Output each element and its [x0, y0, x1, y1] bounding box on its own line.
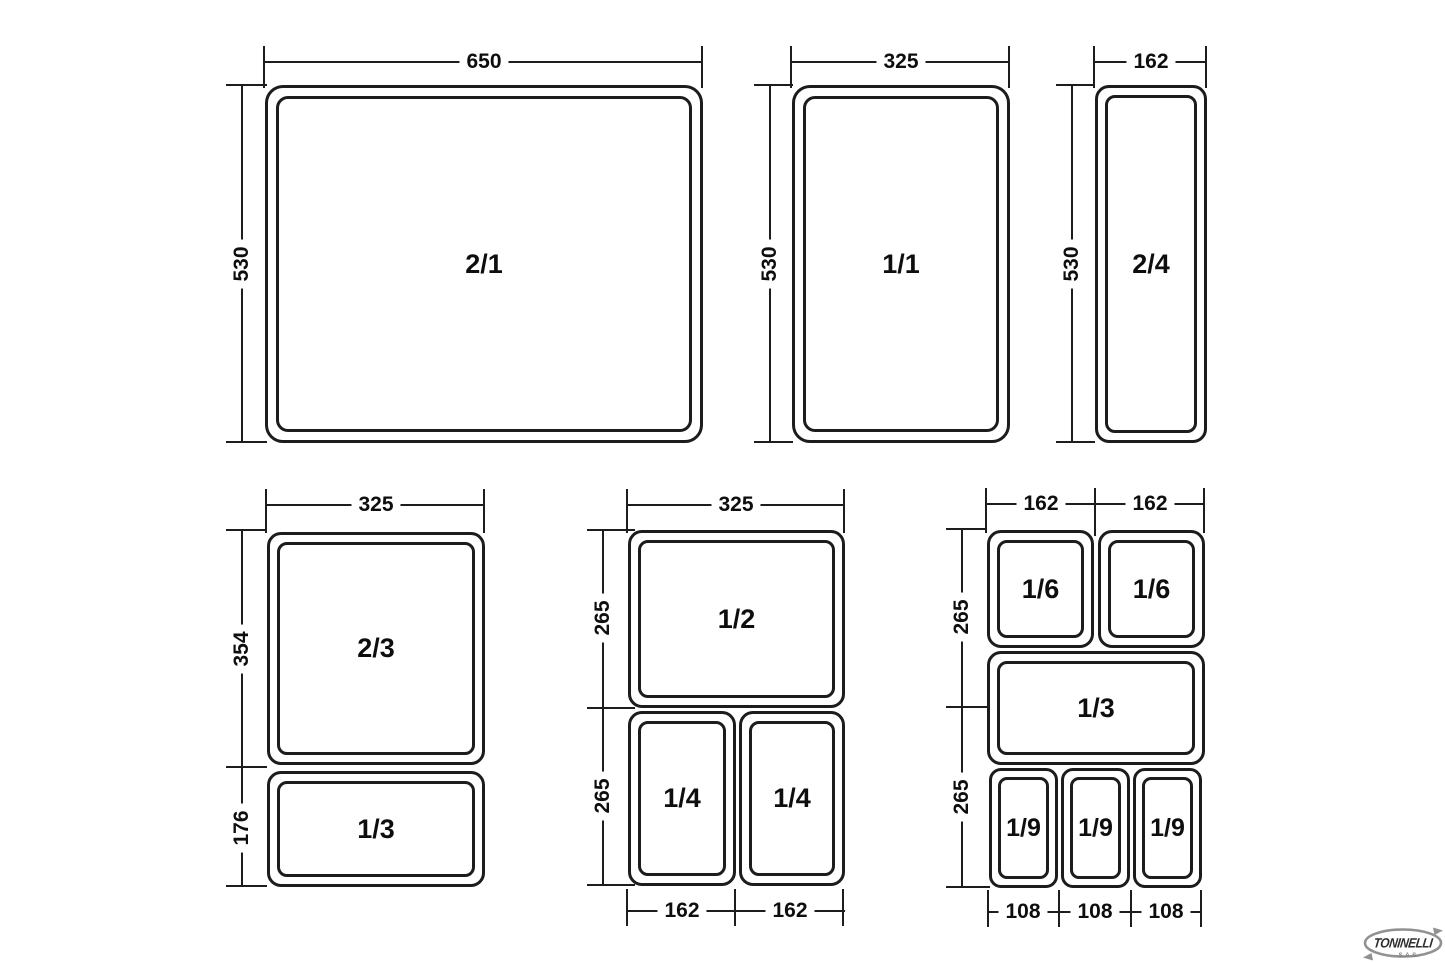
dim-label-162-e: 162 — [1125, 492, 1174, 516]
dim-tick — [1056, 84, 1095, 86]
logo-brand-text: TONINELLI — [1373, 935, 1433, 950]
dim-label-265-c: 265 — [950, 592, 974, 641]
gastronorm-sizes-diagram: 2/1 1/1 2/4 2/3 1/3 1/2 1/4 1/4 1/6 1/6 … — [0, 0, 1445, 963]
pan-1-4-a: 1/4 — [628, 711, 736, 886]
dim-label-162-d: 162 — [1016, 492, 1065, 516]
dim-label-108-a: 108 — [998, 900, 1047, 924]
toninelli-logo: TONINELLI S.A.S. — [1362, 926, 1444, 962]
dim-label-530-a: 530 — [230, 239, 254, 288]
dim-tick — [483, 489, 485, 533]
dim-tick — [842, 889, 844, 926]
dim-tick — [843, 489, 845, 533]
dim-tick — [1205, 46, 1207, 88]
pan-1-6-a: 1/6 — [987, 530, 1094, 648]
dim-label-530-c: 530 — [1060, 239, 1084, 288]
pan-1-2-label: 1/2 — [718, 604, 756, 635]
pan-2-3: 2/3 — [267, 532, 485, 765]
dim-label-325-c: 325 — [711, 493, 760, 517]
pan-1-2: 1/2 — [628, 530, 845, 708]
dim-label-530-b: 530 — [758, 239, 782, 288]
dim-label-265-d: 265 — [950, 772, 974, 821]
dim-label-650: 650 — [459, 50, 508, 74]
dim-tick — [263, 46, 265, 88]
dim-tick — [734, 889, 736, 926]
pan-1-3-left-label: 1/3 — [357, 814, 395, 845]
dim-label-162-c: 162 — [765, 899, 814, 923]
dim-tick — [587, 529, 635, 531]
dim-tick — [754, 84, 793, 86]
logo-arrowhead-top — [1433, 928, 1443, 936]
dim-tick — [946, 706, 990, 708]
dim-label-108-b: 108 — [1070, 900, 1119, 924]
pan-1-4-b: 1/4 — [739, 711, 845, 886]
pan-2-3-label: 2/3 — [357, 633, 395, 664]
pan-1-6-a-label: 1/6 — [1022, 574, 1060, 605]
pan-1-1-label: 1/1 — [882, 249, 920, 280]
dim-tick — [226, 84, 267, 86]
dim-label-176: 176 — [230, 803, 254, 852]
dim-label-162-a: 162 — [1126, 50, 1175, 74]
pan-2-1-label: 2/1 — [465, 249, 503, 280]
dim-tick — [946, 886, 990, 888]
pan-1-9-c: 1/9 — [1133, 768, 1202, 888]
dim-tick — [226, 441, 267, 443]
dim-label-162-b: 162 — [657, 899, 706, 923]
dim-label-108-c: 108 — [1141, 900, 1190, 924]
dim-tick — [1200, 890, 1202, 927]
dim-label-354: 354 — [230, 624, 254, 673]
dim-tick — [265, 489, 267, 533]
dim-tick — [987, 890, 989, 927]
dim-tick — [226, 529, 267, 531]
dim-tick — [626, 889, 628, 926]
logo-suffix-text: S.A.S. — [1399, 953, 1419, 959]
dim-tick — [1056, 441, 1095, 443]
pan-1-3-left: 1/3 — [267, 771, 485, 887]
pan-1-9-b: 1/9 — [1061, 768, 1130, 888]
dim-tick — [1094, 488, 1096, 536]
pan-1-1: 1/1 — [792, 85, 1010, 443]
pan-1-4-a-label: 1/4 — [663, 783, 701, 814]
dim-tick — [946, 528, 987, 530]
pan-2-4: 2/4 — [1095, 85, 1207, 443]
dim-label-325-a: 325 — [876, 50, 925, 74]
dim-tick — [790, 46, 792, 88]
dim-label-265-b: 265 — [591, 771, 615, 820]
pan-1-9-b-label: 1/9 — [1078, 814, 1113, 843]
dim-tick — [226, 885, 267, 887]
dim-tick — [754, 441, 793, 443]
dim-tick — [226, 766, 267, 768]
dim-label-325-b: 325 — [351, 493, 400, 517]
pan-2-1: 2/1 — [265, 85, 703, 443]
dim-tick — [587, 707, 635, 709]
pan-1-3-right: 1/3 — [987, 651, 1205, 765]
pan-1-6-b-label: 1/6 — [1133, 574, 1171, 605]
dim-tick — [626, 489, 628, 533]
dim-line-265-cd — [961, 529, 963, 888]
pan-1-4-b-label: 1/4 — [773, 783, 811, 814]
dim-tick — [1008, 46, 1010, 88]
dim-tick — [1130, 890, 1132, 927]
pan-2-4-label: 2/4 — [1132, 249, 1170, 280]
pan-1-9-a: 1/9 — [989, 768, 1058, 888]
dim-label-265-a: 265 — [591, 593, 615, 642]
pan-1-6-b: 1/6 — [1098, 530, 1205, 648]
dim-tick — [985, 488, 987, 533]
pan-1-9-c-label: 1/9 — [1150, 814, 1185, 843]
dim-tick — [1093, 46, 1095, 88]
pan-1-9-a-label: 1/9 — [1006, 814, 1041, 843]
dim-tick — [587, 884, 635, 886]
dim-tick — [1203, 488, 1205, 533]
pan-1-3-right-label: 1/3 — [1077, 693, 1115, 724]
dim-tick — [1058, 890, 1060, 927]
logo-arrowhead-bottom — [1363, 953, 1373, 961]
dim-tick — [701, 46, 703, 88]
